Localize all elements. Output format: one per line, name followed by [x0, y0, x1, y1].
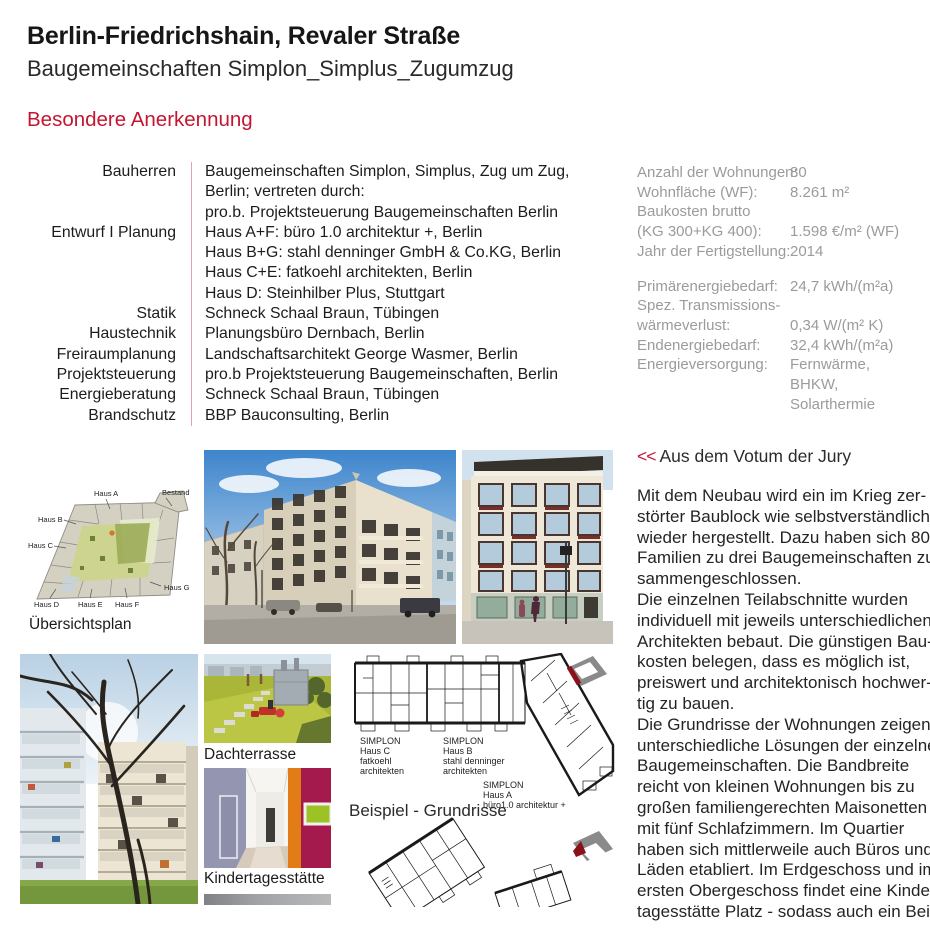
- site-plan-caption: Übersichtsplan: [29, 616, 132, 634]
- jury-line: Familien zu drei Baugemeinschaften zu-: [637, 548, 930, 569]
- jury-line: Die einzelnen Teilabschnitte wurden: [637, 590, 930, 611]
- jury-line: tagesstätte Platz - sodass auch ein Bei-: [637, 902, 930, 923]
- jury-line: großen familiengerechten Maisonetten: [637, 798, 930, 819]
- stats-value: [790, 202, 917, 222]
- credits-line: Baugemeinschaften Simplon, Simplus, Zug …: [205, 162, 619, 182]
- credits-table: Bauherren Baugemeinschaften Simplon, Sim…: [27, 162, 619, 426]
- plan-label-haus-c: SIMPLONHaus C fatkoehlarchitekten: [360, 736, 404, 776]
- site-plan-label-haus-f: Haus F: [115, 600, 140, 609]
- stats-row: Jahr der Fertigstellung:2014: [637, 242, 917, 262]
- credits-label: Statik: [27, 304, 191, 324]
- jury-line: Läden etabliert. Im Erdgeschoss und im: [637, 860, 930, 881]
- street-corner-photo: [204, 450, 456, 644]
- credits-line: pro.b. Projektsteuerung Baugemeinschafte…: [205, 203, 619, 223]
- credits-row: Statik Schneck Schaal Braun, Tübingen: [27, 304, 619, 324]
- credits-row: Energieberatung Schneck Schaal Braun, Tü…: [27, 385, 619, 405]
- jury-heading-text: Aus dem Votum der Jury: [659, 446, 851, 466]
- stats-value: Fernwärme,: [790, 355, 917, 375]
- jury-line: Architekten bebaut. Die günstigen Bau-: [637, 632, 930, 653]
- stats-label: [637, 375, 790, 395]
- stats-value: 1.598 €/m² (WF): [790, 222, 917, 242]
- plan-label-haus-b: SIMPLONHaus B stahl denningerarchitekten: [443, 736, 505, 776]
- stats-value: Solarthermie: [790, 395, 917, 415]
- jury-text: Mit dem Neubau wird ein im Krieg zer- st…: [637, 486, 930, 923]
- stats-row: Wohnfläche (WF):8.261 m²: [637, 183, 917, 203]
- stats-label: Primärenergiebedarf:: [637, 277, 790, 297]
- jury-line: Mit dem Neubau wird ein im Krieg zer-: [637, 486, 930, 507]
- page-title: Berlin-Friedrichshain, Revaler Straße: [27, 22, 460, 51]
- stats-row: Endenergiebedarf:32,4 kWh/(m²a): [637, 336, 917, 356]
- stats-label: Spez. Transmissions-: [637, 296, 790, 316]
- stats-row: wärmeverlust:0,34 W/(m² K): [637, 316, 917, 336]
- jury-line: ersten Obergeschoss findet eine Kinder-: [637, 881, 930, 902]
- stats-label: Wohnfläche (WF):: [637, 183, 790, 203]
- jury-heading: <<Aus dem Votum der Jury: [637, 446, 851, 467]
- stats-label: wärmeverlust:: [637, 316, 790, 336]
- page-subtitle: Baugemeinschaften Simplon_Simplus_Zugumz…: [27, 56, 514, 82]
- stats-label: Endenergiebedarf:: [637, 336, 790, 356]
- credits-line: Haus D: Steinhilber Plus, Stuttgart: [205, 284, 619, 304]
- credits-label: Projektsteuerung: [27, 365, 191, 385]
- stats-row: Primärenergiebedarf:24,7 kWh/(m²a): [637, 277, 917, 297]
- stats-row: (KG 300+KG 400):1.598 €/m² (WF): [637, 222, 917, 242]
- site-plan-label-haus-e: Haus E: [78, 600, 103, 609]
- stats-label: Anzahl der Wohnungen:: [637, 163, 790, 183]
- stats-label: Energieversorgung:: [637, 355, 790, 375]
- jury-line: unterschiedliche Lösungen der einzelnen: [637, 736, 930, 757]
- cropped-photo: [204, 894, 331, 905]
- roof-terrace-caption: Dachterrasse: [204, 746, 296, 764]
- jury-line: haben sich mittlerweile auch Büros und: [637, 840, 930, 861]
- stats-value: 8.261 m²: [790, 183, 917, 203]
- stats-value: 80: [790, 163, 917, 183]
- credits-label: Energieberatung: [27, 385, 191, 405]
- stats-row: Baukosten brutto: [637, 202, 917, 222]
- jury-line: tig zu bauen.: [637, 694, 930, 715]
- stats-value: 24,7 kWh/(m²a): [790, 277, 917, 297]
- credits-label: Haustechnik: [27, 324, 191, 344]
- credits-line: BBP Bauconsulting, Berlin: [205, 406, 619, 426]
- credits-row: Haustechnik Planungsbüro Dernbach, Berli…: [27, 324, 619, 344]
- stats-row: Anzahl der Wohnungen:80: [637, 163, 917, 183]
- credits-row: Projektsteuerung pro.b Projektsteuerung …: [27, 365, 619, 385]
- credits-row: Bauherren Baugemeinschaften Simplon, Sim…: [27, 162, 619, 223]
- credits-line: Schneck Schaal Braun, Tübingen: [205, 304, 619, 324]
- credits-line: Schneck Schaal Braun, Tübingen: [205, 385, 619, 405]
- jury-line: mit fünf Schlafzimmern. Im Quartier: [637, 819, 930, 840]
- award-heading: Besondere Anerkennung: [27, 108, 253, 132]
- stats-label: [637, 395, 790, 415]
- kita-photo: [204, 768, 331, 868]
- stats-row: BHKW,: [637, 375, 917, 395]
- site-plan-label-haus-d: Haus D: [34, 600, 60, 609]
- credits-label: Entwurf I Planung: [27, 223, 191, 304]
- site-plan-label-haus-b: Haus B: [38, 515, 63, 524]
- jury-line: Die Grundrisse der Wohnungen zeigen: [637, 715, 930, 736]
- credits-line: Berlin; vertreten durch:: [205, 182, 619, 202]
- jury-line: wieder hergestellt. Dazu haben sich 80: [637, 528, 930, 549]
- key-plan-icon: [567, 656, 607, 686]
- stats-table: Anzahl der Wohnungen:80 Wohnfläche (WF):…: [637, 163, 917, 414]
- credits-row: Freiraumplanung Landschaftsarchitekt Geo…: [27, 345, 619, 365]
- plans-caption: Beispiel - Grundrisse: [349, 801, 507, 821]
- stats-value: 32,4 kWh/(m²a): [790, 336, 917, 356]
- site-plan-label-haus-c: Haus C: [28, 541, 54, 550]
- facade-photo: [462, 450, 613, 644]
- credits-line: Haus A+F: büro 1.0 architektur +, Berlin: [205, 223, 619, 243]
- credits-line: Landschaftsarchitekt George Wasmer, Berl…: [205, 345, 619, 365]
- credits-row: Entwurf I Planung Haus A+F: büro 1.0 arc…: [27, 223, 619, 304]
- roof-terrace-photo: [204, 654, 331, 743]
- credits-row: Brandschutz BBP Bauconsulting, Berlin: [27, 406, 619, 426]
- courtyard-photo: [20, 654, 198, 904]
- key-plan-icon: [573, 831, 621, 861]
- site-plan-image: Haus A Bestand Haus B Haus C Haus D Haus…: [20, 462, 202, 614]
- credits-line: Haus B+G: stahl denninger GmbH & Co.KG, …: [205, 243, 619, 263]
- stats-row: Spez. Transmissions-: [637, 296, 917, 316]
- site-plan-label-haus-g: Haus G: [164, 583, 190, 592]
- jury-line: störter Baublock wie selbstverständlich: [637, 507, 930, 528]
- stats-label: (KG 300+KG 400):: [637, 222, 790, 242]
- stats-value: 0,34 W/(m² K): [790, 316, 917, 336]
- jury-line: kosten belegen, dass es möglich ist,: [637, 652, 930, 673]
- stats-value: [790, 296, 917, 316]
- stats-label: Baukosten brutto: [637, 202, 790, 222]
- document-page: { "page": { "title": "Berlin-Friedrichsh…: [0, 0, 930, 930]
- site-plan-figure: Haus A Bestand Haus B Haus C Haus D Haus…: [20, 462, 202, 619]
- jury-line: individuell mit jeweils unterschiedliche…: [637, 611, 930, 632]
- stats-value: BHKW,: [790, 375, 917, 395]
- credits-values: Haus A+F: büro 1.0 architektur +, Berlin…: [191, 223, 619, 304]
- credits-values: Baugemeinschaften Simplon, Simplus, Zug …: [191, 162, 619, 223]
- credits-label: Brandschutz: [27, 406, 191, 426]
- credits-line: Planungsbüro Dernbach, Berlin: [205, 324, 619, 344]
- site-plan-label-haus-a: Haus A: [94, 489, 118, 498]
- stats-row: Energieversorgung:Fernwärme,: [637, 355, 917, 375]
- stats-label: Jahr der Fertigstellung:: [637, 242, 790, 262]
- credits-line: Haus C+E: fatkoehl architekten, Berlin: [205, 263, 619, 283]
- jury-line: reicht von kleinen Wohnungen bis zu: [637, 777, 930, 798]
- jury-line: Baugemeinschaften. Die Bandbreite: [637, 756, 930, 777]
- jury-marker: <<: [637, 446, 655, 466]
- credits-label: Bauherren: [27, 162, 191, 223]
- credits-line: pro.b Projektsteuerung Baugemeinschaften…: [205, 365, 619, 385]
- stats-value: 2014: [790, 242, 917, 262]
- site-plan-label-bestand: Bestand: [162, 488, 190, 497]
- floor-plans-figure: SIMPLONHaus C fatkoehlarchitekten SIMPLO…: [345, 653, 621, 907]
- stats-row: Solarthermie: [637, 395, 917, 415]
- credits-label: Freiraumplanung: [27, 345, 191, 365]
- jury-line: preiswert und architektonisch hochwer-: [637, 673, 930, 694]
- jury-line: sammengeschlossen.: [637, 569, 930, 590]
- kita-caption: Kindertagesstätte: [204, 870, 325, 888]
